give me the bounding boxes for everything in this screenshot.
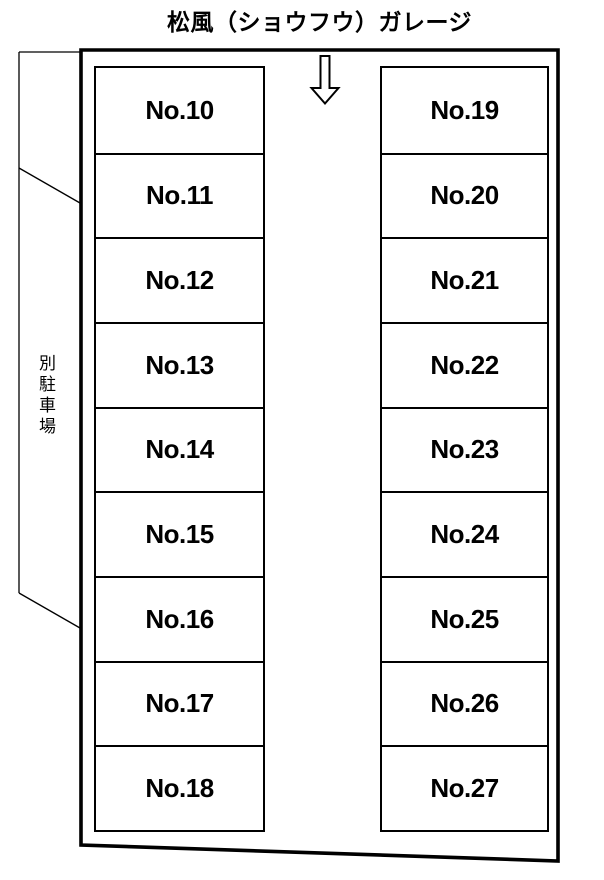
parking-space-label: No.12 <box>145 265 213 296</box>
parking-space-label: No.15 <box>145 519 213 550</box>
left-parking-column: No.10 No.11 No.12 No.13 No.14 No.15 No.1… <box>94 66 265 832</box>
parking-space-label: No.21 <box>430 265 498 296</box>
parking-space-cell: No.14 <box>96 407 263 492</box>
parking-space-cell: No.16 <box>96 576 263 661</box>
parking-space-label: No.13 <box>145 350 213 381</box>
parking-space-label: No.16 <box>145 604 213 635</box>
parking-space-cell: No.26 <box>382 661 547 746</box>
parking-space-label: No.23 <box>430 434 498 465</box>
parking-space-cell: No.13 <box>96 322 263 407</box>
parking-space-label: No.25 <box>430 604 498 635</box>
parking-space-cell: No.22 <box>382 322 547 407</box>
parking-space-label: No.10 <box>145 95 213 126</box>
parking-space-cell: No.10 <box>96 68 263 153</box>
parking-space-cell: No.12 <box>96 237 263 322</box>
parking-space-label: No.11 <box>146 180 213 211</box>
parking-space-cell: No.19 <box>382 68 547 153</box>
parking-space-label: No.14 <box>145 434 213 465</box>
parking-space-label: No.26 <box>430 688 498 719</box>
parking-space-cell: No.15 <box>96 491 263 576</box>
parking-space-cell: No.11 <box>96 153 263 238</box>
parking-space-cell: No.17 <box>96 661 263 746</box>
parking-space-label: No.19 <box>430 95 498 126</box>
parking-space-cell: No.24 <box>382 491 547 576</box>
parking-space-label: No.17 <box>145 688 213 719</box>
annex-parking-label: 別駐車場 <box>34 354 56 438</box>
parking-space-cell: No.18 <box>96 745 263 830</box>
parking-space-cell: No.20 <box>382 153 547 238</box>
parking-space-cell: No.25 <box>382 576 547 661</box>
annex-outline <box>19 52 80 628</box>
parking-space-cell: No.27 <box>382 745 547 830</box>
parking-space-label: No.27 <box>430 773 498 804</box>
right-parking-column: No.19 No.20 No.21 No.22 No.23 No.24 No.2… <box>380 66 549 832</box>
parking-space-cell: No.23 <box>382 407 547 492</box>
parking-space-label: No.18 <box>145 773 213 804</box>
parking-space-cell: No.21 <box>382 237 547 322</box>
parking-layout-diagram: 松風（ショウフウ）ガレージ 別駐車場 No.10 No.11 No.12 No.… <box>0 0 604 880</box>
parking-space-label: No.24 <box>430 519 498 550</box>
parking-space-label: No.22 <box>430 350 498 381</box>
page-title: 松風（ショウフウ）ガレージ <box>81 7 558 38</box>
parking-space-label: No.20 <box>430 180 498 211</box>
down-arrow-icon <box>312 56 339 104</box>
